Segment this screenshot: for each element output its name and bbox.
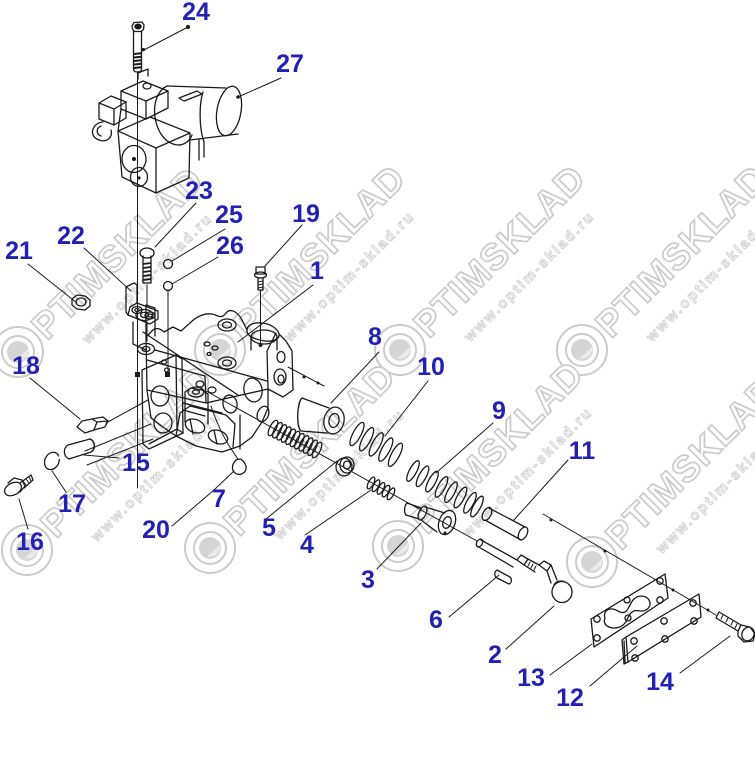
svg-text:8: 8	[368, 323, 382, 351]
svg-text:18: 18	[12, 352, 40, 380]
svg-text:20: 20	[142, 516, 170, 544]
svg-text:3: 3	[361, 566, 375, 594]
svg-text:9: 9	[492, 397, 506, 425]
svg-text:23: 23	[185, 177, 213, 205]
svg-text:16: 16	[16, 528, 44, 556]
svg-text:25: 25	[215, 201, 243, 229]
svg-text:6: 6	[429, 606, 443, 634]
svg-text:27: 27	[276, 50, 304, 78]
svg-text:21: 21	[5, 237, 33, 265]
svg-text:17: 17	[58, 490, 86, 518]
svg-text:19: 19	[292, 200, 320, 228]
svg-text:14: 14	[646, 668, 674, 696]
svg-text:22: 22	[57, 222, 85, 250]
svg-text:13: 13	[517, 664, 545, 692]
svg-text:7: 7	[212, 485, 226, 513]
svg-text:1: 1	[310, 257, 324, 285]
svg-text:2: 2	[488, 641, 502, 669]
svg-text:4: 4	[300, 531, 314, 559]
svg-text:26: 26	[216, 232, 244, 260]
svg-text:5: 5	[262, 514, 276, 542]
svg-text:12: 12	[556, 684, 584, 712]
svg-text:15: 15	[122, 449, 150, 477]
svg-text:10: 10	[417, 353, 445, 381]
svg-text:24: 24	[182, 0, 210, 26]
svg-text:11: 11	[569, 437, 596, 465]
